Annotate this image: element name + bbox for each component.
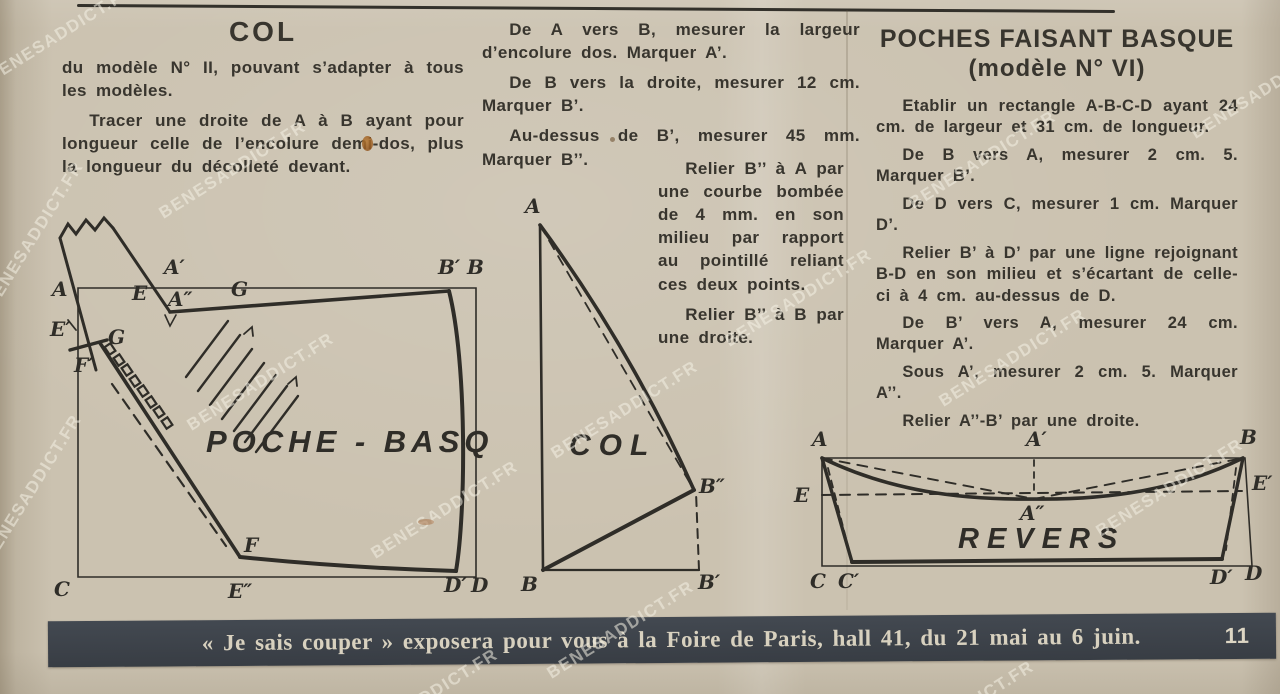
diagram-title-revers: REVERS: [958, 523, 1125, 555]
point-label-d: D: [470, 573, 488, 597]
point-label-b-prime: B′: [437, 255, 461, 279]
point-label-a: A: [810, 428, 828, 451]
poche-basque-diagram: A A′ E A″ G B′ B E′ G F′ F C E″ D′ D POC…: [48, 212, 488, 604]
column-poches: POCHES FAISANT BASQUE (modèle N° VI) Eta…: [876, 24, 1238, 438]
point-label-d-prime: D′: [443, 573, 467, 597]
paragraph: De B vers la droite, mesurer 12 cm. Marq…: [482, 71, 860, 117]
point-label-b: B: [466, 255, 484, 279]
footer-banner: « Je sais couper » exposera pour vous à …: [48, 613, 1276, 668]
column-middle-wide: De A vers B, mesurer la largeur d’encolu…: [482, 18, 860, 178]
paragraph: De A vers B, mesurer la largeur d’encolu…: [482, 18, 860, 64]
paper-stain: [610, 137, 615, 142]
point-label-e-prime: E′: [49, 317, 71, 341]
point-label-e: E: [131, 281, 148, 305]
col-diagram: A B B′ B″ COL: [495, 195, 725, 597]
point-label-d-prime: D′: [1209, 565, 1233, 589]
top-rule-line: [77, 4, 1115, 13]
banner-text: « Je sais couper » exposera pour vous à …: [48, 623, 1225, 657]
paragraph: du modèle N° II, pouvant s’adapter à tou…: [62, 56, 464, 102]
point-label-e-second: E″: [227, 579, 252, 603]
point-label-b-second: B″: [698, 474, 725, 498]
point-label-a-second: A″: [1018, 501, 1045, 525]
point-label-c: C: [54, 577, 70, 601]
diagram-title-col: COL: [569, 429, 656, 462]
point-label-d: D: [1244, 561, 1263, 585]
revers-diagram: A A′ B E E′ A″ C C′ D′ D REVERS: [790, 428, 1280, 594]
point-label-g-mid: G: [108, 325, 125, 349]
col-heading: COL: [62, 16, 464, 48]
point-label-a: A: [523, 195, 541, 218]
diagram-title-poche-basque: POCHE - BASQUE: [206, 424, 488, 459]
point-label-g-top: G: [231, 277, 248, 301]
paragraph: Relier B’ à D’ par une ligne rejoignant …: [876, 243, 1238, 307]
point-label-e-prime: E′: [1251, 471, 1273, 495]
poches-heading-line2: (modèle N° VI): [876, 54, 1238, 84]
point-label-b: B: [520, 572, 538, 596]
paragraph: De D vers C, mesurer 1 cm. Marquer D’.: [876, 194, 1238, 237]
point-label-c-prime: C′: [838, 569, 860, 593]
paragraph: De B vers A, mesurer 2 cm. 5. Marquer B’…: [876, 145, 1238, 188]
point-label-f-prime: F′: [73, 353, 94, 377]
point-label-a-prime: A′: [1024, 428, 1048, 451]
point-label-b: B: [1239, 428, 1257, 449]
point-label-a-second: A″: [166, 287, 193, 311]
paragraph: De B’ vers A, mesurer 24 cm. Marquer A’.: [876, 313, 1238, 356]
watermark: BENESADDICT.FR: [884, 657, 1038, 694]
paper-stain: [362, 136, 373, 151]
poches-heading-line1: POCHES FAISANT BASQUE: [876, 24, 1238, 54]
paragraph: Sous A’, mesurer 2 cm. 5. Marquer A’’.: [876, 362, 1238, 405]
point-label-c: C: [810, 569, 826, 593]
point-label-f: F: [243, 533, 260, 557]
page-number: 11: [1225, 623, 1250, 649]
point-label-a: A: [50, 277, 68, 301]
point-label-b-prime: B′: [697, 570, 721, 594]
scanned-magazine-page: COL du modèle N° II, pouvant s’adapter à…: [0, 0, 1280, 694]
paper-stain: [418, 519, 434, 525]
paragraph: Tracer une droite de A à B ayant pour lo…: [62, 109, 464, 178]
point-label-e: E: [793, 483, 810, 507]
point-label-a-prime: A′: [162, 255, 186, 279]
column-col: COL du modèle N° II, pouvant s’adapter à…: [62, 16, 464, 186]
paragraph: Etablir un rectangle A-B-C-D ayant 24 cm…: [876, 96, 1238, 139]
